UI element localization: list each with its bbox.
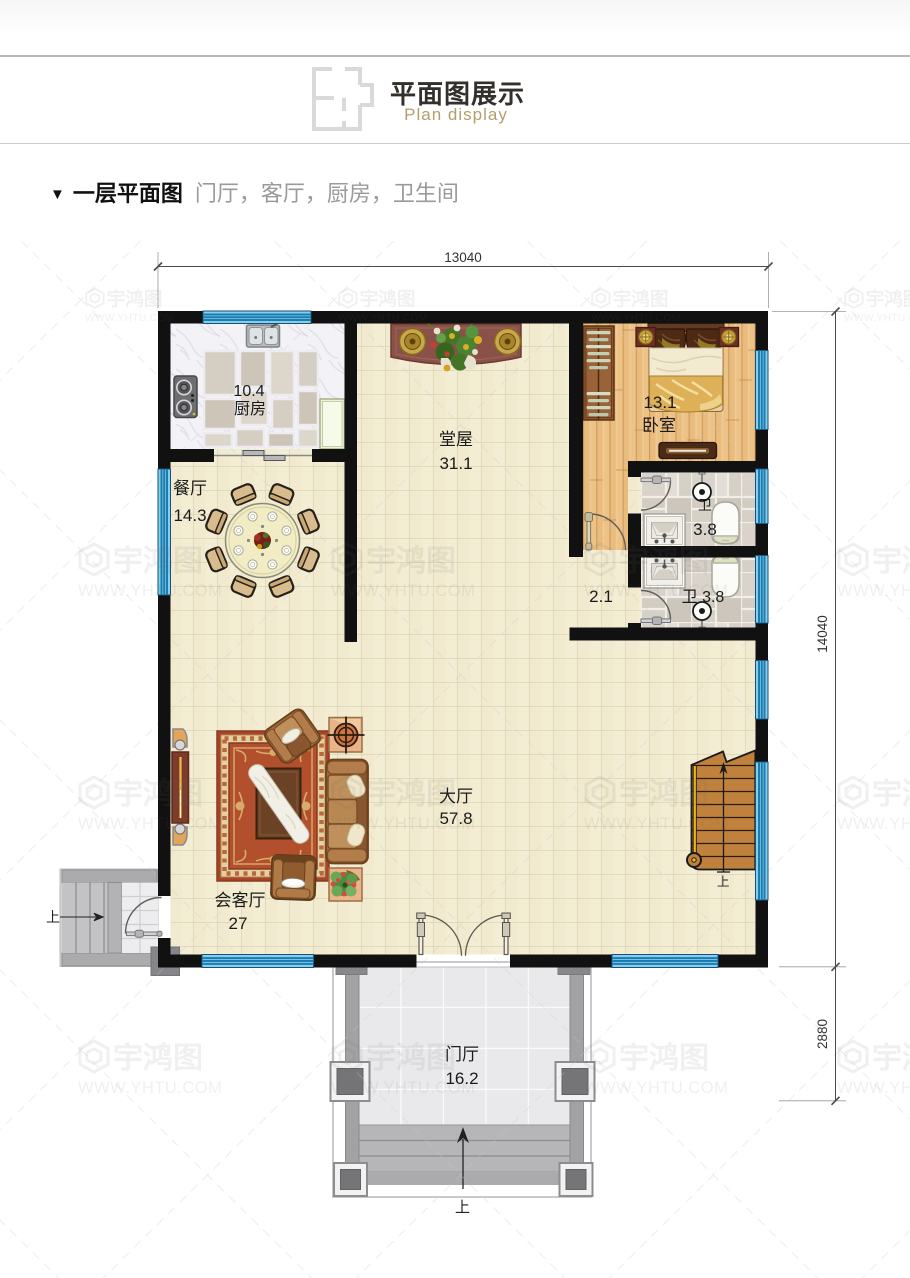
svg-text:卫: 卫 — [698, 497, 712, 513]
svg-text:13.1: 13.1 — [643, 393, 676, 412]
svg-text:10.4: 10.4 — [233, 383, 264, 400]
svg-text:3.8: 3.8 — [693, 520, 717, 539]
svg-text:卧室: 卧室 — [642, 416, 676, 435]
svg-text:27: 27 — [229, 914, 248, 933]
svg-text:厨房: 厨房 — [234, 400, 266, 418]
svg-text:堂屋: 堂屋 — [439, 430, 473, 449]
svg-text:14040: 14040 — [815, 615, 830, 653]
svg-text:会客厅: 会客厅 — [215, 891, 266, 910]
svg-text:14.3: 14.3 — [173, 506, 206, 525]
svg-text:13040: 13040 — [444, 250, 482, 265]
svg-text:31.1: 31.1 — [439, 454, 472, 473]
svg-text:上: 上 — [717, 875, 730, 889]
svg-text:餐厅: 餐厅 — [173, 479, 207, 498]
svg-text:2880: 2880 — [815, 1019, 830, 1049]
